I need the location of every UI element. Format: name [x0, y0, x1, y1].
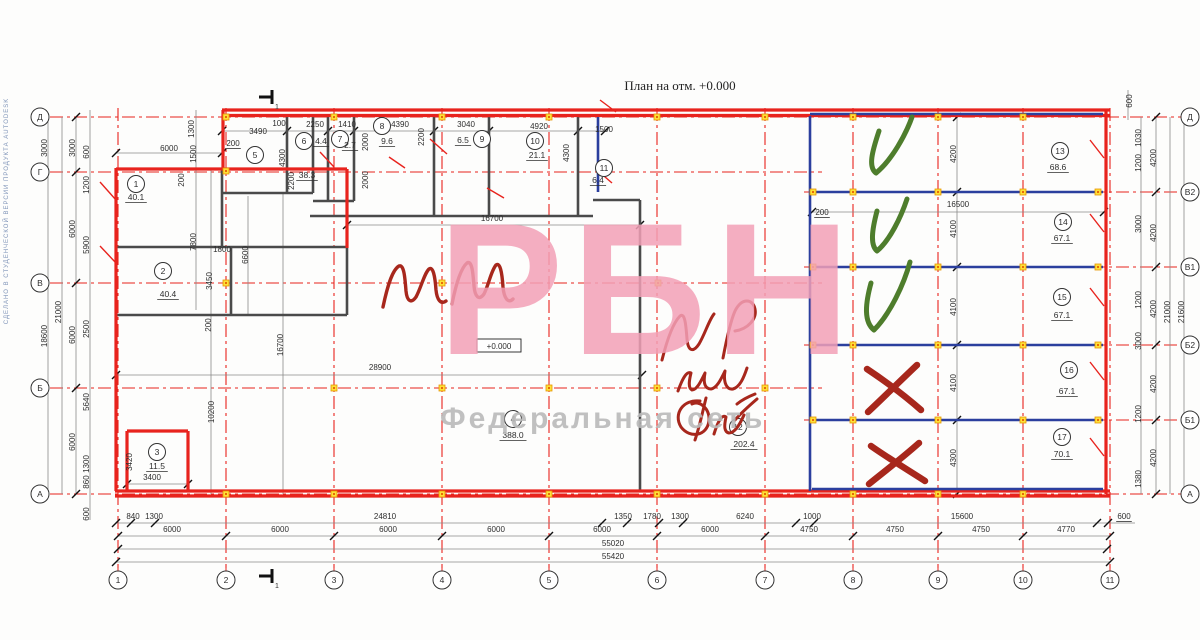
grid-node-dot — [333, 493, 335, 495]
dimension-value: 4100 — [949, 374, 958, 392]
dimension-value: 4200 — [1149, 300, 1158, 318]
grid-node-dot — [1097, 191, 1099, 193]
room-area: 70.1 — [1054, 449, 1071, 459]
dimension-value: 1300 — [145, 512, 163, 521]
dimension-value: 55420 — [602, 552, 625, 561]
room-area: 38.3 — [299, 170, 316, 180]
room-number: 15 — [1057, 292, 1067, 302]
grid-node-dot — [548, 493, 550, 495]
grid-node-dot — [225, 282, 227, 284]
floor-plan-drawing: 3490100225014104390304049201500200600013… — [0, 0, 1200, 640]
room-area: 388.0 — [502, 430, 524, 440]
handwritten-checkmark — [866, 262, 910, 330]
dimension-value: 1300 — [187, 120, 196, 138]
grid-node-dot — [1022, 344, 1024, 346]
dimension-value: 2500 — [82, 320, 91, 338]
dimension-value: 200 — [226, 139, 240, 148]
dimension-value: 3490 — [249, 127, 267, 136]
dimension-value: 1200 — [1134, 154, 1143, 172]
axis-label: А — [37, 489, 43, 499]
grid-node-dot — [1022, 116, 1024, 118]
grid-node-dot — [333, 116, 335, 118]
dimension-value: 6000 — [379, 525, 397, 534]
dimension-value: 100 — [272, 119, 286, 128]
dimension-value: 1200 — [1134, 405, 1143, 423]
room-number: 7 — [338, 134, 343, 144]
dimension-value: 1380 — [1134, 470, 1143, 488]
dimension-value: 16700 — [481, 214, 504, 223]
grid-node-dot — [937, 419, 939, 421]
dimension-value: 6600 — [241, 246, 250, 264]
grid-node-dot — [937, 266, 939, 268]
dimension-value: 4770 — [1057, 525, 1075, 534]
section-mark-number: 1 — [275, 583, 279, 590]
axis-label: Д — [1187, 112, 1193, 122]
grid-node-dot — [764, 116, 766, 118]
dimension-value: 4300 — [562, 144, 571, 162]
grid-node-dot — [225, 116, 227, 118]
grid-node-dot — [657, 282, 659, 284]
door-swing — [1090, 438, 1104, 456]
grid-node-dot — [937, 116, 939, 118]
axis-label: Б — [37, 383, 43, 393]
axis-label: 5 — [547, 575, 552, 585]
dimension-value: 200 — [815, 208, 829, 217]
dimension-value: 4200 — [1149, 375, 1158, 393]
door-swing — [1090, 288, 1104, 306]
room-number: 14 — [1058, 217, 1068, 227]
dimension-value: 1000 — [803, 512, 821, 521]
door-swing — [100, 246, 116, 263]
grid-node-dot — [852, 419, 854, 421]
dimension-value: 1300 — [671, 512, 689, 521]
dimension-value: 18600 — [40, 324, 49, 347]
dimension-value: 3000 — [1134, 332, 1143, 350]
room-area: 2.7 — [344, 140, 356, 150]
dimension-value: 4200 — [1149, 449, 1158, 467]
handwritten-mr-ili-fix-note — [662, 314, 714, 360]
room-number: 16 — [1064, 365, 1074, 375]
room-number: 13 — [1055, 146, 1065, 156]
dimension-value: 600 — [1125, 94, 1134, 108]
grid-node-dot — [656, 387, 658, 389]
grid-node-dot — [656, 493, 658, 495]
door-swing — [1090, 140, 1104, 158]
handwritten-mr-ili-fix-note — [678, 368, 747, 391]
door-swing — [389, 157, 405, 168]
axis-label: 4 — [440, 575, 445, 585]
handwritten-mm-note — [383, 266, 446, 307]
door-swing — [100, 182, 116, 200]
dimension-value: 860 — [82, 475, 91, 489]
dimension-value: 6000 — [68, 433, 77, 451]
axis-label: В2 — [1185, 187, 1196, 197]
room-area: 40.1 — [128, 192, 145, 202]
door-swing — [1090, 362, 1104, 380]
dimension-value: 21600 — [1177, 300, 1186, 323]
door-swing — [430, 139, 447, 154]
dimension-value: 2200 — [417, 128, 426, 146]
handwritten-mr-ili-fix-note — [723, 301, 755, 358]
dimension-value: 1300 — [82, 455, 91, 473]
dimension-value: 1500 — [189, 145, 198, 163]
dimension-value: 2000 — [361, 133, 370, 151]
grid-node-dot — [225, 170, 227, 172]
axis-label: Б2 — [1185, 340, 1196, 350]
dimension-value: 3450 — [205, 272, 214, 290]
dimension-value: 4750 — [972, 525, 990, 534]
room-area: 67.1 — [1059, 386, 1076, 396]
room-area: 40.4 — [160, 289, 177, 299]
room-number: 3 — [155, 447, 160, 457]
axis-label: В — [37, 278, 43, 288]
drawing-title: План на отм. +0.000 — [560, 78, 800, 94]
dimension-value: 1500 — [595, 125, 613, 134]
dimension-value: 3420 — [125, 453, 134, 471]
grid-node-dot — [441, 282, 443, 284]
axis-label: Д — [37, 112, 43, 122]
dimension-value: 6000 — [68, 326, 77, 344]
grid-node-dot — [852, 191, 854, 193]
axis-label: Б1 — [1185, 415, 1196, 425]
axis-label: 8 — [851, 575, 856, 585]
grid-node-dot — [333, 387, 335, 389]
dimension-value: 3400 — [143, 473, 161, 482]
grid-node-dot — [1022, 493, 1024, 495]
grid-node-dot — [852, 344, 854, 346]
dimension-value: 15600 — [951, 512, 974, 521]
grid-node-dot — [441, 116, 443, 118]
dimension-value: 4200 — [1149, 149, 1158, 167]
dimension-value: 1800 — [213, 245, 231, 254]
door-swing — [1090, 214, 1104, 232]
dimension-value: 1410 — [338, 120, 356, 129]
grid-node-dot — [937, 344, 939, 346]
dimension-value: 6000 — [271, 525, 289, 534]
room-area: 67.1 — [1054, 233, 1071, 243]
axis-label: 9 — [936, 575, 941, 585]
dimension-value: 2200 — [287, 172, 296, 190]
handwritten-mr-ili-fix-note — [714, 394, 757, 434]
dimension-value: 4390 — [391, 120, 409, 129]
dimension-value: 1350 — [614, 512, 632, 521]
dimension-value: 55020 — [602, 539, 625, 548]
section-mark-number: 1 — [275, 104, 279, 111]
room-number: 5 — [253, 150, 258, 160]
dimension-value: 6000 — [701, 525, 719, 534]
dimension-value: 840 — [126, 512, 140, 521]
grid-node-dot — [1097, 419, 1099, 421]
axis-label: 7 — [763, 575, 768, 585]
handwritten-cross — [867, 365, 921, 412]
room-number: 4 — [511, 414, 516, 424]
floor-plan-page: { "meta": { "title": "План на отм. +0.00… — [0, 0, 1200, 640]
grid-node-dot — [548, 116, 550, 118]
grid-node-dot — [225, 493, 227, 495]
grid-node-dot — [441, 387, 443, 389]
grid-node-dot — [1097, 266, 1099, 268]
dimension-value: 10200 — [207, 400, 216, 423]
dimension-value: 4920 — [530, 122, 548, 131]
grid-node-dot — [812, 191, 814, 193]
handwritten-cross — [869, 443, 925, 484]
dimension-value: 1200 — [1134, 291, 1143, 309]
dimension-value: 6000 — [593, 525, 611, 534]
room-area: 9.6 — [381, 136, 393, 146]
grid-node-dot — [441, 493, 443, 495]
grid-node-dot — [852, 116, 854, 118]
room-number: 8 — [380, 121, 385, 131]
grid-node-dot — [764, 387, 766, 389]
dimension-value: 3000 — [1134, 215, 1143, 233]
grid-node-dot — [1097, 344, 1099, 346]
axis-label: А — [1187, 489, 1193, 499]
grid-node-dot — [1022, 266, 1024, 268]
grid-node-dot — [812, 266, 814, 268]
room-area: 67.1 — [1054, 310, 1071, 320]
grid-node-dot — [852, 493, 854, 495]
axis-label: 3 — [332, 575, 337, 585]
dimension-value: 3040 — [457, 120, 475, 129]
dimension-value: 200 — [204, 318, 213, 332]
dimension-value: 6240 — [736, 512, 754, 521]
dimension-value: 7800 — [189, 233, 198, 251]
grid-node-dot — [937, 191, 939, 193]
grid-node-dot — [548, 387, 550, 389]
dimension-value: 5640 — [82, 393, 91, 411]
dimension-value: 4100 — [949, 298, 958, 316]
dimension-value: 6000 — [160, 144, 178, 153]
dimension-value: 21000 — [1163, 300, 1172, 323]
dimension-value: 4100 — [949, 220, 958, 238]
axis-label: 1 — [116, 575, 121, 585]
grid-node-dot — [656, 116, 658, 118]
dimension-value: 200 — [177, 173, 186, 187]
student-version-watermark: СДЕЛАНО В СТУДЕНЧЕСКОЙ ВЕРСИИ ПРОДУКТА A… — [4, 76, 10, 346]
grid-node-dot — [937, 493, 939, 495]
dimension-value: 28900 — [369, 363, 392, 372]
axis-label: 6 — [655, 575, 660, 585]
room-area: 6.5 — [457, 135, 469, 145]
grid-node-dot — [1022, 191, 1024, 193]
room-area: 4.4 — [315, 136, 327, 146]
room-number: 9 — [480, 134, 485, 144]
axis-label: Г — [38, 167, 43, 177]
axis-label: 11 — [1106, 575, 1115, 585]
dimension-value: 4750 — [886, 525, 904, 534]
room-number: 6 — [302, 136, 307, 146]
grid-node-dot — [1022, 419, 1024, 421]
dimension-value: 1780 — [643, 512, 661, 521]
dimension-value: 600 — [1117, 512, 1131, 521]
axis-label: 10 — [1018, 575, 1028, 585]
dimension-value: 21000 — [54, 300, 63, 323]
dimension-value: 600 — [82, 145, 91, 159]
room-number: 11 — [600, 163, 609, 173]
handwritten-mr-ili-fix-note — [678, 398, 709, 440]
grid-node-dot — [852, 266, 854, 268]
room-area: 21.1 — [529, 150, 546, 160]
grid-node-dot — [812, 419, 814, 421]
dimension-value: 5900 — [82, 236, 91, 254]
elevation-mark-value: +0.000 — [487, 342, 512, 351]
room-number: 1 — [134, 179, 139, 189]
dimension-value: 2250 — [306, 120, 324, 129]
dimension-value: 16500 — [947, 200, 970, 209]
dimension-value: 3000 — [68, 139, 77, 157]
dimension-value: 16700 — [276, 333, 285, 356]
room-number: 17 — [1057, 432, 1067, 442]
grid-node-dot — [812, 344, 814, 346]
dimension-value: 3000 — [40, 139, 49, 157]
room-number: 10 — [530, 136, 540, 146]
dimension-value: 4200 — [949, 145, 958, 163]
grid-node-dot — [764, 493, 766, 495]
dimension-value: 24810 — [374, 512, 397, 521]
axis-label: 2 — [224, 575, 229, 585]
dimension-value: 6000 — [163, 525, 181, 534]
axis-label: В1 — [1185, 262, 1196, 272]
dimension-value: 1030 — [1134, 129, 1143, 147]
dimension-value: 4750 — [800, 525, 818, 534]
room-area: 6.4 — [592, 175, 604, 185]
dimension-value: 4300 — [949, 449, 958, 467]
room-area: 68.6 — [1050, 162, 1067, 172]
dimension-value: 4200 — [1149, 224, 1158, 242]
dimension-value: 600 — [82, 507, 91, 521]
dimension-value: 2000 — [361, 171, 370, 189]
room-area: 202.4 — [733, 439, 755, 449]
dimension-value: 1200 — [82, 176, 91, 194]
handwritten-checkmark — [872, 117, 912, 173]
room-area: 11.5 — [149, 461, 165, 471]
handwritten-checkmark — [872, 199, 907, 251]
dimension-value: 4300 — [278, 149, 287, 167]
room-number: 2 — [161, 266, 166, 276]
dimension-value: 6000 — [68, 220, 77, 238]
dimension-value: 6000 — [487, 525, 505, 534]
